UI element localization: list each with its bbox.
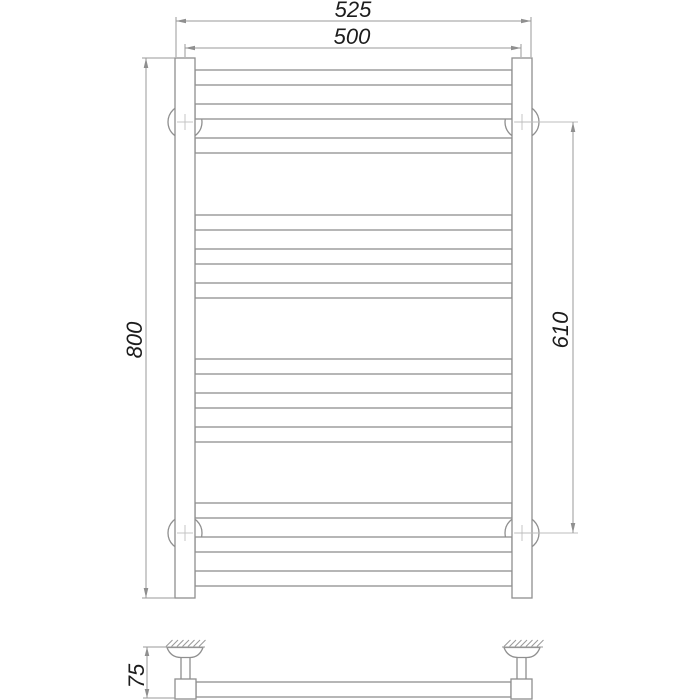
bracket-stem bbox=[517, 655, 526, 681]
towel-rail-dimension-drawing: 525 500 800 610 bbox=[0, 0, 700, 700]
rung bbox=[195, 571, 512, 586]
bottom-view: 75 bbox=[124, 640, 544, 699]
rung bbox=[195, 138, 512, 153]
overall-height-label: 800 bbox=[122, 321, 147, 358]
rung bbox=[195, 283, 512, 298]
rung bbox=[195, 537, 512, 552]
hatch-marks-icon bbox=[166, 640, 206, 647]
bracket-block bbox=[511, 679, 532, 699]
mounting-brackets bbox=[168, 105, 539, 550]
rungs bbox=[195, 70, 512, 586]
rail-tube-profile bbox=[196, 682, 511, 697]
rung bbox=[195, 393, 512, 408]
dim-arrow-icon bbox=[511, 46, 521, 51]
dimension-wall-distance: 75 bbox=[124, 647, 175, 698]
front-view: 525 500 800 610 bbox=[122, 0, 578, 598]
rung bbox=[195, 104, 512, 119]
mounting-width-label: 500 bbox=[334, 24, 371, 49]
overall-width-label: 525 bbox=[335, 0, 372, 22]
wall-distance-label: 75 bbox=[124, 663, 149, 688]
dim-arrow-icon bbox=[145, 689, 150, 698]
dim-arrow-icon bbox=[571, 523, 576, 533]
rung bbox=[195, 427, 512, 442]
bracket-center-marks bbox=[177, 114, 530, 541]
dim-arrow-icon bbox=[145, 647, 150, 656]
dim-arrow-icon bbox=[144, 58, 149, 68]
dim-arrow-icon bbox=[521, 19, 531, 24]
dim-arrow-icon bbox=[571, 122, 576, 132]
dimension-overall-height: 800 bbox=[122, 58, 175, 598]
bracket-distance-label: 610 bbox=[548, 311, 573, 348]
left-post bbox=[175, 58, 195, 598]
dim-arrow-icon bbox=[176, 19, 186, 24]
bracket-stem bbox=[181, 655, 190, 681]
hatch-marks-icon bbox=[504, 640, 544, 647]
dim-arrow-icon bbox=[185, 46, 195, 51]
rung bbox=[195, 70, 512, 85]
drawing-canvas: 525 500 800 610 bbox=[0, 0, 700, 700]
rung bbox=[195, 503, 512, 518]
rung bbox=[195, 359, 512, 374]
rung bbox=[195, 249, 512, 264]
dimension-mounting-width: 500 bbox=[185, 24, 521, 57]
wall-hatching bbox=[164, 640, 544, 647]
bracket-block bbox=[175, 679, 196, 699]
rung bbox=[195, 215, 512, 230]
right-post bbox=[512, 58, 532, 598]
dim-arrow-icon bbox=[144, 588, 149, 598]
bracket-flange bbox=[167, 648, 203, 658]
bracket-flange bbox=[504, 648, 540, 658]
